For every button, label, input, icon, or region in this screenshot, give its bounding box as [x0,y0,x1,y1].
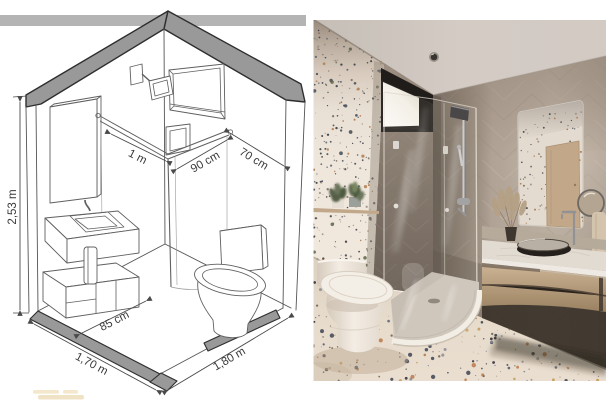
svg-text:2,53 m: 2,53 m [7,189,19,224]
